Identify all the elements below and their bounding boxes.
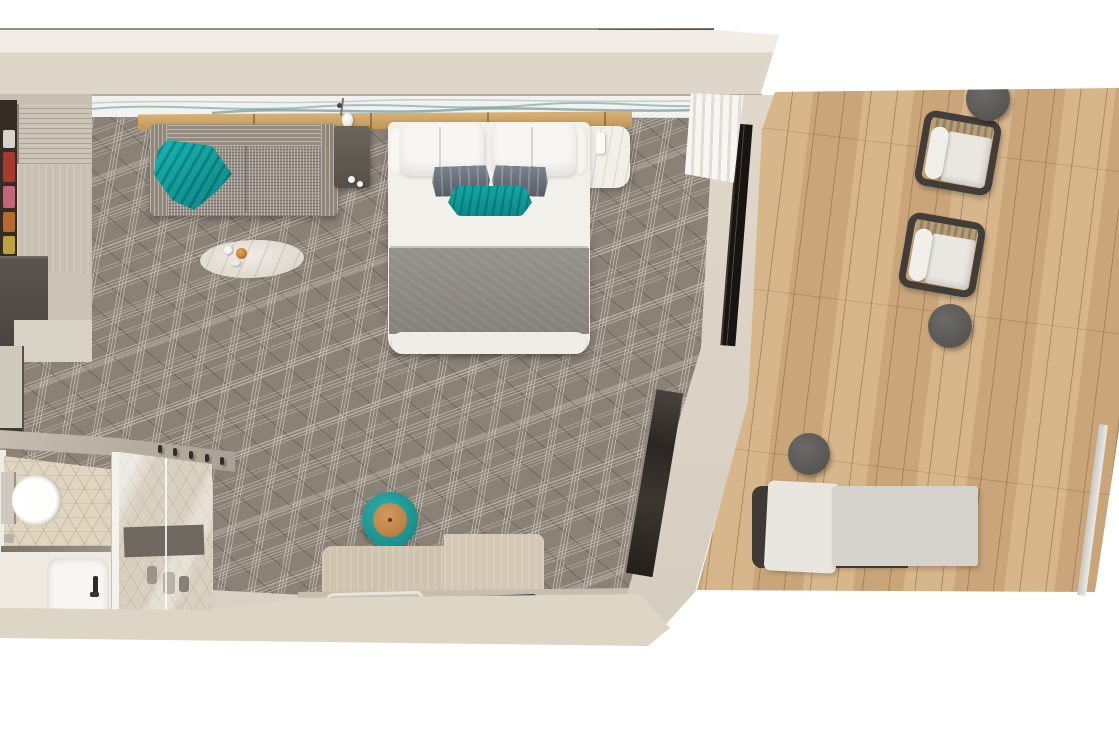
desk-panel-left (322, 546, 444, 592)
shower-bottle (147, 566, 157, 584)
stool-button (388, 518, 392, 522)
cup (357, 181, 363, 187)
closet-item-yellow (3, 236, 15, 254)
desk-panel-right (444, 534, 544, 592)
sofa (150, 124, 338, 216)
shower-bench (124, 525, 205, 558)
closet-item-pink (3, 186, 15, 208)
wardrobe-bottom-shelf (14, 320, 92, 362)
shower-door-edge (165, 458, 167, 622)
bed-bench (392, 332, 586, 354)
nightstand-item (596, 132, 605, 154)
curtain (684, 93, 743, 183)
lounger-body-cushion (832, 486, 978, 566)
top-wall (0, 30, 779, 96)
coat-hook (189, 451, 193, 459)
bed (388, 120, 590, 354)
nightstand-left (334, 126, 370, 188)
faucet-base (90, 592, 99, 597)
candle (236, 248, 247, 259)
shower-bottle (179, 576, 189, 592)
bathroom (0, 426, 236, 636)
wardrobe (0, 94, 92, 362)
coat-hook (158, 445, 162, 453)
closet-item-orange (3, 212, 15, 232)
closet-item-white (3, 130, 15, 148)
wicker-chair-1 (913, 109, 1003, 197)
lounger (752, 480, 978, 574)
cup (348, 176, 355, 183)
top-wall-inner-edge (0, 94, 762, 96)
wicker-chair-2 (897, 211, 987, 299)
side-table-top (966, 77, 1010, 121)
side-table-low (788, 433, 830, 475)
vanity-back-edge (1, 546, 112, 552)
left-wall-lower (0, 346, 24, 434)
toilet-seat (22, 482, 54, 518)
foot-blanket (389, 248, 589, 334)
toilet-paper-holder (4, 534, 14, 543)
pendant-mount (337, 103, 342, 108)
teal-bolster-pillow (448, 186, 532, 216)
coat-hook (205, 454, 209, 462)
closet-item-red (3, 152, 15, 182)
nightstand-right (590, 126, 630, 188)
pendant-lamp (342, 113, 353, 127)
sofa-cushion-divider (245, 146, 247, 212)
shower (119, 450, 212, 628)
stool (362, 492, 418, 548)
side-table-mid (928, 304, 972, 348)
wardrobe-ridged-panel (17, 104, 92, 164)
lounger-head-cushion (764, 480, 841, 574)
coat-hook (220, 457, 224, 465)
stateroom-floorplan (0, 0, 1119, 746)
open-closet (0, 100, 17, 276)
cup (224, 246, 232, 254)
saucer (231, 259, 240, 266)
coat-hook (173, 448, 177, 456)
